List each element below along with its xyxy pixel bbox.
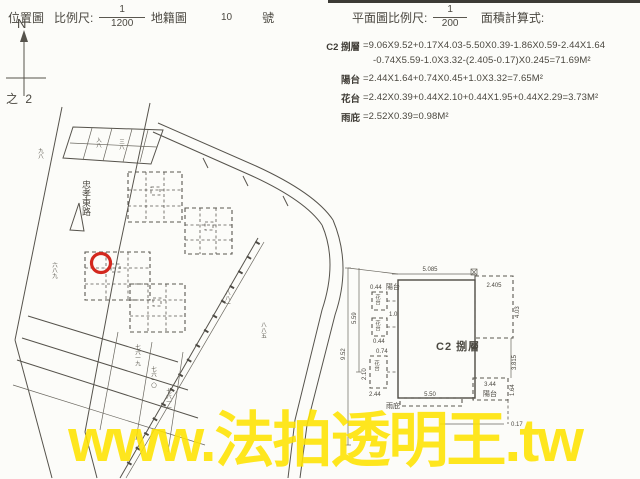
scan-edge-artifact [328,0,640,3]
calc-eq-balcony: =2.44X1.64+0.74X0.45+1.0X3.32=7.65M² [363,72,638,87]
dimension-right-mid: 3.815 [511,338,518,378]
scanned-document-page: 位置圖 比例尺: 1 1200 地籍圖 10 號 平面圖比例尺: 1 200 面… [0,0,640,479]
watermark-text: www.法拍透明王.tw [0,392,640,479]
dim-5-59: 5.59 [352,312,358,324]
lot-label: 七六一九 [134,343,141,368]
dim-2-405: 2.405 [486,283,502,289]
calc-row-flowerbed: 花台 =2.42X0.39+0.44X2.10+0.44X1.95+0.44X2… [308,91,638,106]
calc-eq-unit-line1: =9.06X9.52+0.17X4.03-5.50X0.39-1.86X0.59… [363,40,605,51]
subject-unit-red-circle-marker [92,254,111,273]
lot-number-labels: 六八九 八八一 八八五 七六一九 七六一〇 七六一一 九八 入八 三八 [37,137,267,410]
lot-label: 入八 [95,137,102,148]
lot-label: 七六一〇 [150,365,157,389]
area-calc-label: 面積計算式: [481,9,544,26]
flower-label-1: 花台 [374,293,381,307]
area-calculation-block: C2 捌層 =9.06X9.52+0.17X4.03-5.50X0.39-1.8… [308,39,638,129]
lot-label: 六八九 [51,261,58,280]
flower-label-2: 花台 [374,319,381,333]
dim-4-03: 4.03 [515,306,521,318]
dim-5-085: 5.085 [422,267,438,273]
calc-eq-flowerbed: =2.42X0.39+0.44X2.10+0.44X1.95+0.44X2.29… [363,91,638,106]
calc-row-canopy: 雨庇 =2.52X0.39=0.98M² [308,110,638,125]
calc-eq-unit: =9.06X9.52+0.17X4.03-5.50X0.39-1.86X0.59… [363,39,638,68]
lot-label: 三八 [118,139,125,151]
calc-row-balcony: 陽台 =2.44X1.64+0.74X0.45+1.0X3.32=7.65M² [308,72,638,87]
balcony-tl-label: 陽台 [386,282,400,291]
building-footprint-d [130,284,185,332]
dim-9-52: 9.52 [341,348,347,360]
calc-eq-canopy: =2.52X0.39=0.98M² [363,110,638,125]
lot-label: 八八五 [260,322,267,339]
annex-top-right: 2.405 4.03 [471,269,521,338]
unit-title: C2 捌層 [436,339,480,353]
flower-label-3: 花台 [373,359,380,373]
scale-fraction-1-200: 1 200 [433,5,467,29]
dim-2-10: 2.10 [362,368,368,380]
dim-0-44-b: 0.44 [373,339,385,345]
main-unit-outline [398,280,475,398]
road-name-label: 忠孝東路 [81,180,91,217]
balcony-flower-cluster-left: 0.44 陽台 花台 1.0 花台 0.44 0.74 花台 2.10 2.44 [362,282,400,398]
calc-eq-unit-line2: -0.74X5.59-1.0X3.32-(2.405-0.17)X0.245=7… [363,54,638,69]
lot-label: 八八一 [224,290,231,307]
dim-3-815: 3.815 [512,354,518,370]
dim-1-0: 1.0 [389,312,398,318]
floor-plan-header: 平面圖比例尺: 1 200 面積計算式: [352,5,544,29]
dim-0-44-a: 0.44 [370,285,382,291]
building-footprint-a [128,172,182,222]
plan-scale-numerator: 1 [433,5,467,18]
calc-row-unit: C2 捌層 =9.06X9.52+0.17X4.03-5.50X0.39-1.8… [308,39,638,68]
building-footprint-b [185,208,232,254]
dimension-top: 5.085 [392,267,475,274]
lot-label: 九八 [37,147,44,160]
dim-3-44: 3.44 [484,382,496,388]
plan-scale-label: 平面圖比例尺: [352,9,427,26]
plan-scale-denominator: 200 [442,18,459,30]
dim-0-74: 0.74 [376,349,388,355]
parcel-cluster-top [63,127,163,164]
